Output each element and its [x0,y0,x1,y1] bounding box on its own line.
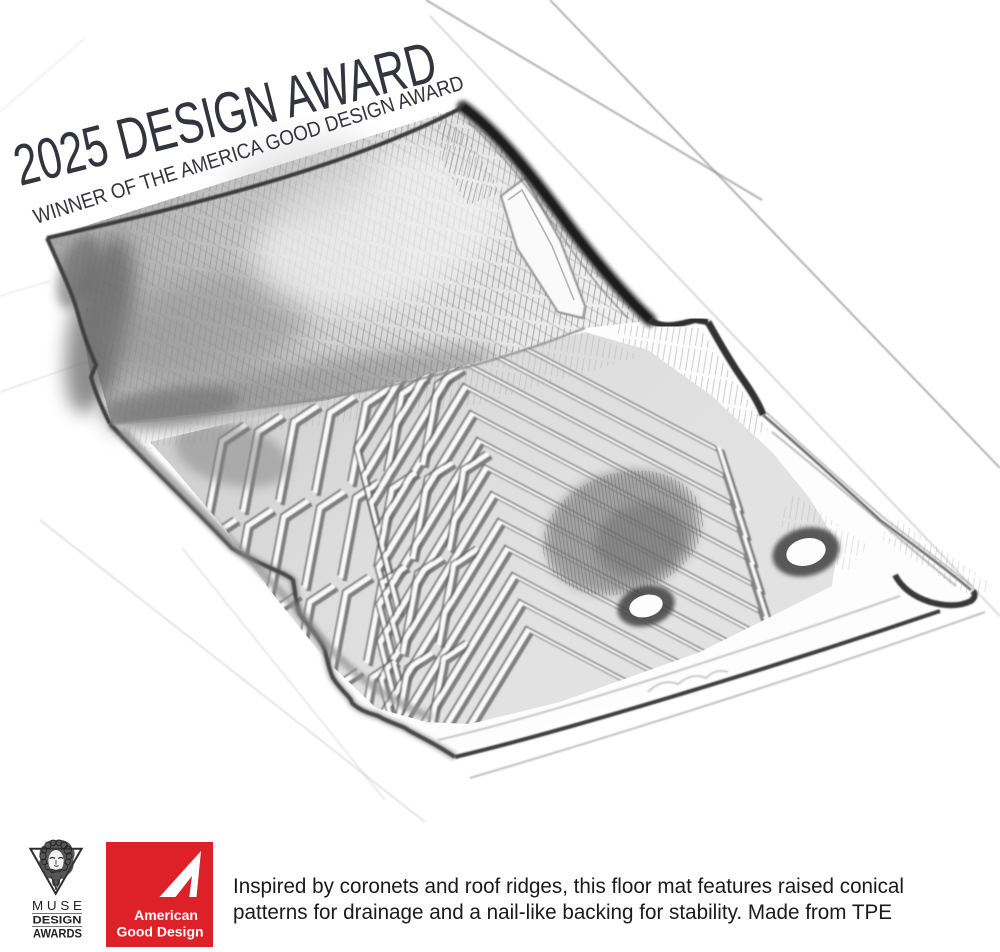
svg-text:Good Design: Good Design [116,924,203,940]
svg-text:Inspired by coronets and roof: Inspired by coronets and roof ridges, th… [233,874,904,898]
svg-text:AWARDS: AWARDS [33,929,82,941]
svg-text:patterns for drainage and a na: patterns for drainage and a nail-like ba… [233,900,892,924]
svg-text:M U S E: M U S E [32,898,82,913]
svg-text:American: American [134,907,198,923]
svg-text:DESIGN: DESIGN [33,915,82,927]
